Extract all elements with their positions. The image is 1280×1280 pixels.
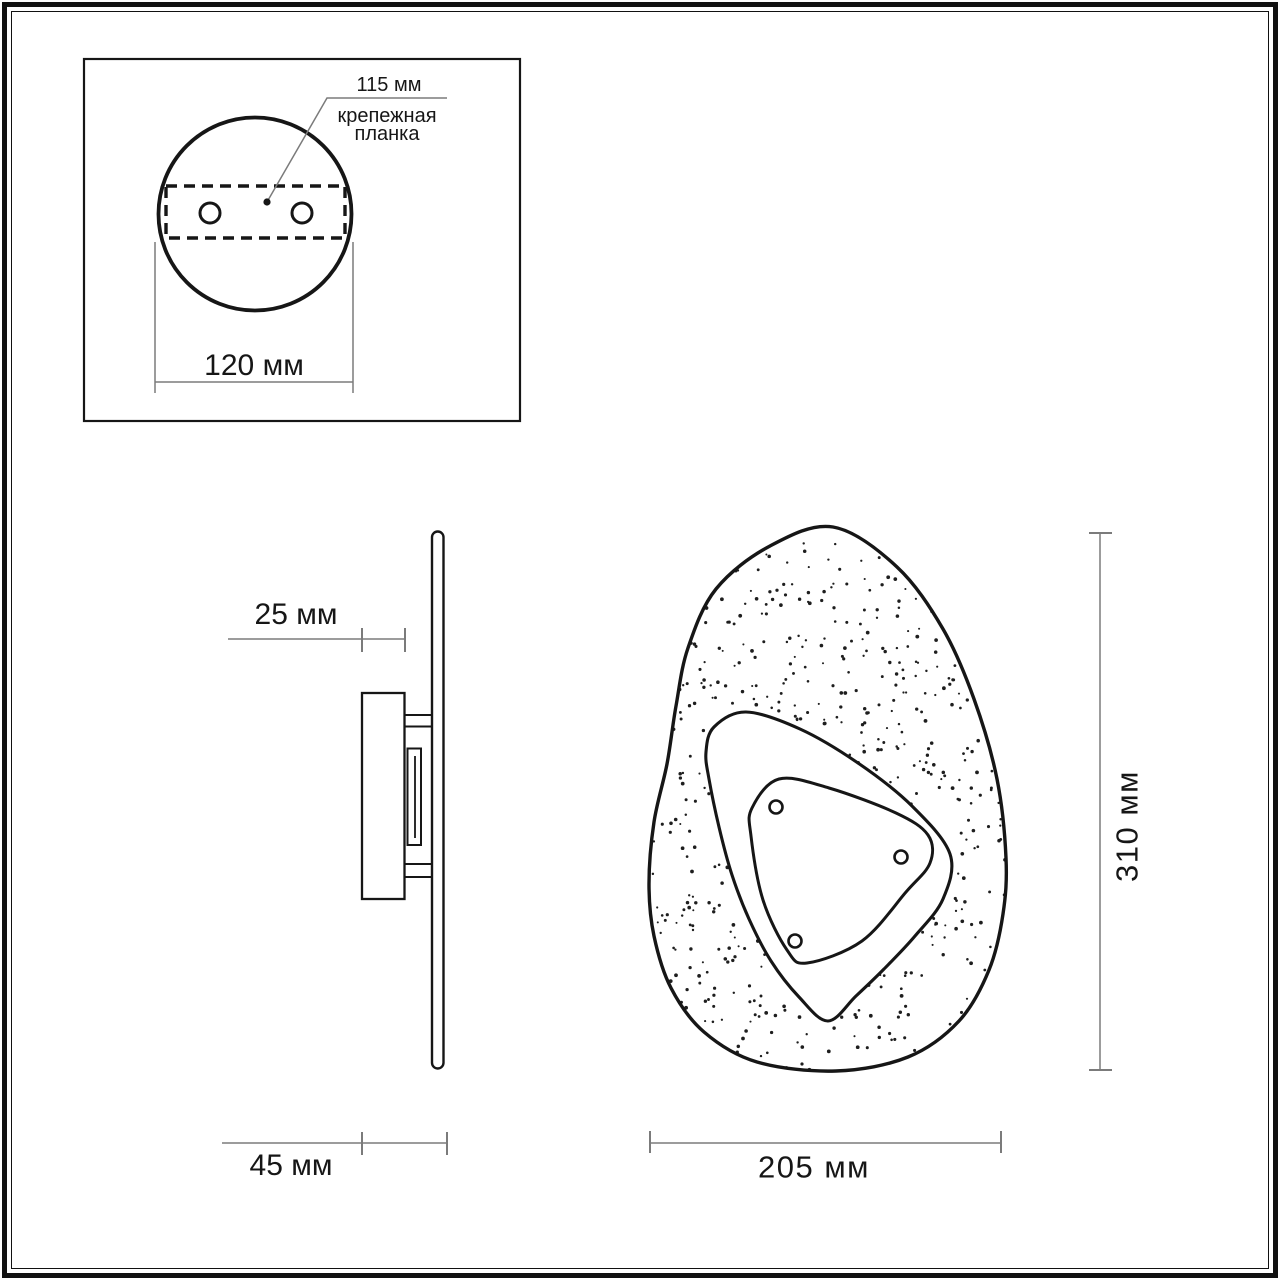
stipple-dot <box>950 703 954 707</box>
stipple-dot <box>889 781 891 783</box>
stipple-dot <box>682 684 684 686</box>
stipple-dot <box>969 961 973 965</box>
stipple-dot <box>960 919 964 923</box>
stipple-dot <box>688 704 691 707</box>
stipple-dot <box>940 778 942 780</box>
stipple-dot <box>827 1050 831 1054</box>
stipple-dot <box>881 647 884 650</box>
stipple-dot <box>918 628 920 630</box>
stipple-dot <box>904 971 907 974</box>
stipple-dot <box>760 1055 762 1057</box>
stipple-dot <box>830 586 832 588</box>
stipple-dot <box>822 590 826 594</box>
stipple-dot <box>860 731 863 734</box>
stipple-dot <box>905 691 907 693</box>
stipple-dot <box>704 1000 707 1003</box>
stipple-dot <box>767 555 771 559</box>
stipple-dot <box>694 901 697 904</box>
dim-label-205mm: 205 мм <box>758 1152 870 1183</box>
stipple-dot <box>955 910 957 912</box>
stipple-dot <box>807 680 810 683</box>
stipple-dot <box>807 591 810 594</box>
stipple-dot <box>902 669 905 672</box>
stipple-dot <box>698 668 701 671</box>
stipple-dot <box>915 792 918 795</box>
stipple-dot <box>865 650 868 653</box>
stipple-dot <box>792 672 795 675</box>
stipple-dot <box>843 691 847 695</box>
stipple-dot <box>692 929 694 931</box>
stipple-dot <box>703 787 705 789</box>
stipple-dot <box>957 798 960 801</box>
stipple-dot <box>954 927 958 931</box>
stipple-dot <box>890 1039 893 1042</box>
stipple-dot <box>960 832 963 835</box>
stipple-dot <box>712 994 715 997</box>
stipple-dot <box>860 560 862 562</box>
stipple-dot <box>967 819 970 822</box>
stipple-dot <box>744 1029 748 1033</box>
stipple-dot <box>858 1009 861 1012</box>
stipple-dot <box>897 776 899 778</box>
stipple-dot <box>807 601 809 603</box>
stipple-dot <box>948 683 951 686</box>
stipple-dot <box>822 662 824 664</box>
stipple-dot <box>702 729 705 732</box>
stipple-dot <box>718 864 721 867</box>
stipple-dot <box>989 946 992 949</box>
stipple-dot <box>750 590 752 592</box>
stipple-dot <box>808 566 810 568</box>
stipple-dot <box>917 662 919 664</box>
stipple-dot <box>823 722 827 726</box>
stipple-dot <box>692 909 694 911</box>
stipple-dot <box>961 908 963 910</box>
stipple-dot <box>914 675 916 677</box>
stipple-dot <box>693 642 697 646</box>
dim-label-310mm: 310 мм <box>1112 770 1143 882</box>
stipple-dot <box>777 701 780 704</box>
stipple-dot <box>867 711 870 714</box>
stipple-dot <box>869 1014 873 1018</box>
stipple-dot <box>804 666 807 669</box>
stipple-dot <box>924 719 928 723</box>
stipple-dot <box>678 772 682 776</box>
stipple-dot <box>880 748 883 751</box>
stipple-dot <box>910 971 913 974</box>
stipple-dot <box>674 948 676 950</box>
stipple-dot <box>782 583 785 586</box>
stipple-dot <box>934 922 938 926</box>
stipple-dot <box>960 1011 963 1014</box>
stipple-dot <box>847 671 850 674</box>
stipple-dot <box>827 558 829 560</box>
stipple-dot <box>754 703 758 707</box>
stipple-dot <box>721 1019 723 1021</box>
led-plate-hole-top <box>770 801 783 814</box>
stipple-dot <box>731 702 734 705</box>
stipple-dot <box>656 906 658 908</box>
stipple-dot <box>949 1023 952 1026</box>
stipple-dot <box>689 923 692 926</box>
stipple-dot <box>697 974 701 978</box>
stipple-dot <box>845 582 848 585</box>
stipple-dot <box>942 686 946 690</box>
stipple-dot <box>754 1013 757 1016</box>
stipple-dot <box>924 692 927 695</box>
stipple-dot <box>712 910 715 913</box>
stipple-dot <box>856 1045 860 1049</box>
stipple-dot <box>915 635 919 639</box>
stipple-dot <box>738 661 741 664</box>
stipple-dot <box>927 771 930 774</box>
stipple-dot <box>693 702 696 705</box>
stipple-dot <box>925 670 927 672</box>
stipple-dot <box>794 656 796 658</box>
stipple-dot <box>970 786 973 789</box>
stipple-dot <box>679 823 681 825</box>
stipple-dot <box>716 680 720 684</box>
stipple-dot <box>691 924 694 927</box>
stipple-dot <box>679 711 682 714</box>
stipple-dot <box>942 953 945 956</box>
stipple-dot <box>906 645 909 648</box>
stipple-dot <box>733 955 736 958</box>
stipple-dot <box>713 865 716 868</box>
stipple-dot <box>898 661 901 664</box>
stipple-dot <box>878 1036 881 1039</box>
stipple-dot <box>661 914 664 917</box>
mounting-base-circle <box>159 118 352 311</box>
stipple-dot <box>702 678 706 682</box>
stipple-dot <box>920 974 923 977</box>
stipple-dot <box>669 831 672 834</box>
stipple-dot <box>958 693 960 695</box>
dim-label-45mm: 45 мм <box>250 1151 333 1181</box>
stipple-dot <box>690 870 694 874</box>
stipple-dot <box>669 822 673 826</box>
stipple-dot <box>698 773 700 775</box>
stipple-dot <box>893 1038 896 1041</box>
stipple-dot <box>760 995 763 998</box>
stipple-dot <box>714 696 717 699</box>
stipple-dot <box>686 855 689 858</box>
stipple-dot <box>707 901 710 904</box>
stipple-dot <box>700 682 702 684</box>
stipple-dot <box>674 973 678 977</box>
stipple-dot <box>970 750 973 753</box>
stipple-dot <box>798 1015 802 1019</box>
stipple-dot <box>878 703 881 706</box>
stipple-dot <box>873 766 876 769</box>
stipple-dot <box>694 800 697 803</box>
stipple-dot <box>930 773 933 776</box>
stipple-dot <box>965 838 967 840</box>
stipple-dot <box>682 908 685 911</box>
stipple-dot <box>777 709 780 712</box>
stipple-dot <box>915 707 918 710</box>
stipple-dot <box>896 614 900 618</box>
stipple-dot <box>862 744 864 746</box>
stipple-dot <box>964 759 967 762</box>
stipple-dot <box>664 919 667 922</box>
stipple-dot <box>672 947 675 950</box>
stipple-dot <box>972 829 976 833</box>
stipple-dot <box>888 1032 891 1035</box>
dim-label-25mm: 25 мм <box>255 600 338 630</box>
stipple-dot <box>753 698 756 701</box>
stipple-dot <box>720 881 724 885</box>
stipple-dot <box>843 646 847 650</box>
stipple-dot <box>970 923 973 926</box>
stipple-dot <box>832 583 834 585</box>
stipple-dot <box>784 678 787 681</box>
stipple-dot <box>921 931 924 934</box>
stipple-dot <box>783 1009 786 1012</box>
stipple-dot <box>902 677 905 680</box>
stipple-dot <box>932 763 936 767</box>
stipple-dot <box>954 897 957 900</box>
stipple-dot <box>707 998 710 1001</box>
stipple-dot <box>966 998 968 1000</box>
stipple-dot <box>806 1033 808 1035</box>
stipple-dot <box>749 1021 751 1023</box>
stipple-dot <box>738 614 742 618</box>
stipple-dot <box>834 543 836 545</box>
stipple-dot <box>850 640 853 643</box>
stipple-dot <box>926 754 929 757</box>
stipple-dot <box>951 678 954 681</box>
stipple-dot <box>733 622 736 625</box>
stipple-dot <box>853 1013 856 1016</box>
stipple-dot <box>922 768 925 771</box>
stipple-dot <box>791 583 793 585</box>
stipple-dot <box>892 699 895 702</box>
stipple-dot <box>990 787 993 790</box>
stipple-dot <box>666 913 669 916</box>
stipple-dot <box>693 845 697 849</box>
technical-drawing-page: 115 мм крепежнаяпланка 120 мм 25 мм 45 м… <box>0 0 1280 1280</box>
stipple-dot <box>681 782 685 786</box>
stipple-dot <box>942 771 946 775</box>
stipple-dot <box>976 845 979 848</box>
stipple-dot <box>913 1049 916 1052</box>
stipple-dot <box>766 1051 769 1054</box>
stipple-dot <box>963 900 966 903</box>
stipple-dot <box>800 1062 803 1065</box>
stipple-dot <box>689 947 692 950</box>
stipple-dot <box>932 944 934 946</box>
stipple-dot <box>712 1005 715 1008</box>
stipple-dot <box>886 575 890 579</box>
stipple-dot <box>903 743 905 745</box>
stipple-dot <box>774 1014 778 1018</box>
stipple-dot <box>920 710 923 713</box>
stipple-dot <box>896 747 899 750</box>
stipple-dot <box>862 750 866 754</box>
stipple-dot <box>780 692 783 695</box>
stipple-dot <box>898 606 901 609</box>
stipple-dot <box>750 649 754 653</box>
stipple-dot <box>930 741 934 745</box>
stipple-dot <box>882 741 885 744</box>
stipple-dot <box>944 924 946 926</box>
stipple-dot <box>934 694 936 696</box>
stipple-dot <box>661 823 664 826</box>
stipple-dot <box>675 922 677 924</box>
stipple-dot <box>925 761 928 764</box>
stipple-dot <box>863 609 866 612</box>
stipple-dot <box>974 936 976 938</box>
stipple-dot <box>931 935 933 937</box>
dim-label-120mm: 120 мм <box>204 351 304 381</box>
stipple-dot <box>900 994 904 998</box>
stipple-dot <box>962 876 966 880</box>
stipple-dot <box>799 717 802 720</box>
stipple-dot <box>904 588 906 590</box>
stipple-dot <box>999 824 1001 826</box>
stipple-dot <box>834 620 837 623</box>
stipple-dot <box>797 635 799 637</box>
stipple-dot <box>724 957 728 961</box>
stipple-dot <box>796 718 799 721</box>
stipple-dot <box>688 966 691 969</box>
stipple-dot <box>724 684 727 687</box>
stipple-dot <box>803 542 805 544</box>
stipple-dot <box>686 901 690 905</box>
stipple-dot <box>863 707 866 710</box>
stipple-dot <box>741 690 744 693</box>
stipple-dot <box>712 697 714 699</box>
stipple-dot <box>976 739 980 743</box>
stipple-dot <box>680 718 683 721</box>
stipple-dot <box>823 719 825 721</box>
mounting-plate-label: крепежнаяпланка <box>337 107 436 143</box>
stipple-dot <box>880 583 883 586</box>
stipple-dot <box>883 650 886 653</box>
stipple-dot <box>960 852 964 856</box>
stipple-dot <box>652 873 654 875</box>
stipple-dot <box>688 830 691 833</box>
stipple-dot <box>900 987 903 990</box>
stipple-dot <box>840 1016 843 1019</box>
stipple-dot <box>744 603 746 605</box>
stipple-dot <box>988 890 991 893</box>
stipple-dot <box>682 772 684 774</box>
stipple-dot <box>717 948 720 951</box>
stipple-dot <box>798 597 801 600</box>
stipple-dot <box>775 589 778 592</box>
stipple-dot <box>868 589 871 592</box>
stipple-dot <box>836 716 839 719</box>
stipple-dot <box>702 686 705 689</box>
stipple-dot <box>987 825 990 828</box>
stipple-dot <box>895 672 898 675</box>
stipple-dot <box>861 723 864 726</box>
stipple-dot <box>743 947 746 950</box>
mounting-screw-hole-right <box>292 203 312 223</box>
stipple-dot <box>864 578 866 580</box>
stipple-dot <box>999 838 1002 841</box>
leader-anchor-dot <box>263 198 270 205</box>
stipple-dot <box>894 684 897 687</box>
stipple-dot <box>751 685 753 687</box>
stipple-dot <box>796 1041 798 1043</box>
stipple-dot <box>853 1035 855 1037</box>
stipple-dot <box>674 818 678 822</box>
stipple-dot <box>876 617 878 619</box>
stipple-dot <box>907 630 909 632</box>
stipple-dot <box>934 650 938 654</box>
stipple-dot <box>786 641 788 643</box>
stipple-dot <box>975 771 979 775</box>
stipple-dot <box>973 847 975 849</box>
stipple-dot <box>886 727 888 729</box>
stipple-dot <box>881 675 884 678</box>
stipple-dot <box>901 731 904 734</box>
mounting-screw-hole-left <box>200 203 220 223</box>
stipple-dot <box>862 655 864 657</box>
stipple-dot <box>897 1016 900 1019</box>
stipple-dot <box>866 1046 869 1049</box>
stipple-dot <box>730 931 732 933</box>
mounting-plate-label-line2: планка <box>337 125 436 143</box>
stipple-dot <box>760 966 762 968</box>
stipple-dot <box>784 593 787 596</box>
stipple-dot <box>737 1045 740 1048</box>
stipple-dot <box>842 657 845 660</box>
stipple-dot <box>979 921 983 925</box>
stipple-dot <box>782 682 785 685</box>
stipple-dot <box>958 779 960 781</box>
stipple-dot <box>820 599 823 602</box>
stipple-dot <box>657 921 659 923</box>
stipple-dot <box>742 643 744 645</box>
stipple-dot <box>943 774 946 777</box>
stipple-dot <box>685 813 687 815</box>
stipple-dot <box>718 904 721 907</box>
stipple-dot <box>943 936 945 938</box>
stipple-dot <box>991 770 994 773</box>
stipple-dot <box>839 705 842 708</box>
stipple-dot <box>720 597 724 601</box>
stipple-dot <box>753 656 756 659</box>
stipple-dot <box>712 1021 715 1024</box>
stipple-dot <box>707 792 710 795</box>
stipple-dot <box>765 554 767 556</box>
stipple-dot <box>768 590 771 593</box>
stipple-dot <box>681 846 685 850</box>
stipple-dot <box>893 577 897 581</box>
stipple-dot <box>770 1031 773 1034</box>
stipple-dot <box>913 764 916 767</box>
stipple-dot <box>757 568 760 571</box>
stipple-dot <box>738 945 740 947</box>
stipple-dot <box>823 637 825 639</box>
stipple-dot <box>748 984 751 987</box>
stipple-dot <box>902 691 904 693</box>
stipple-dot <box>698 982 701 985</box>
stipple-dot <box>934 638 938 642</box>
stipple-dot <box>806 711 809 714</box>
stipple-dot <box>966 747 969 750</box>
stipple-dot <box>832 1026 835 1029</box>
stipple-dot <box>832 606 835 609</box>
stipple-dot <box>948 677 951 680</box>
stipple-dot <box>789 662 792 665</box>
stipple-dot <box>726 960 729 963</box>
stipple-dot <box>681 914 683 916</box>
